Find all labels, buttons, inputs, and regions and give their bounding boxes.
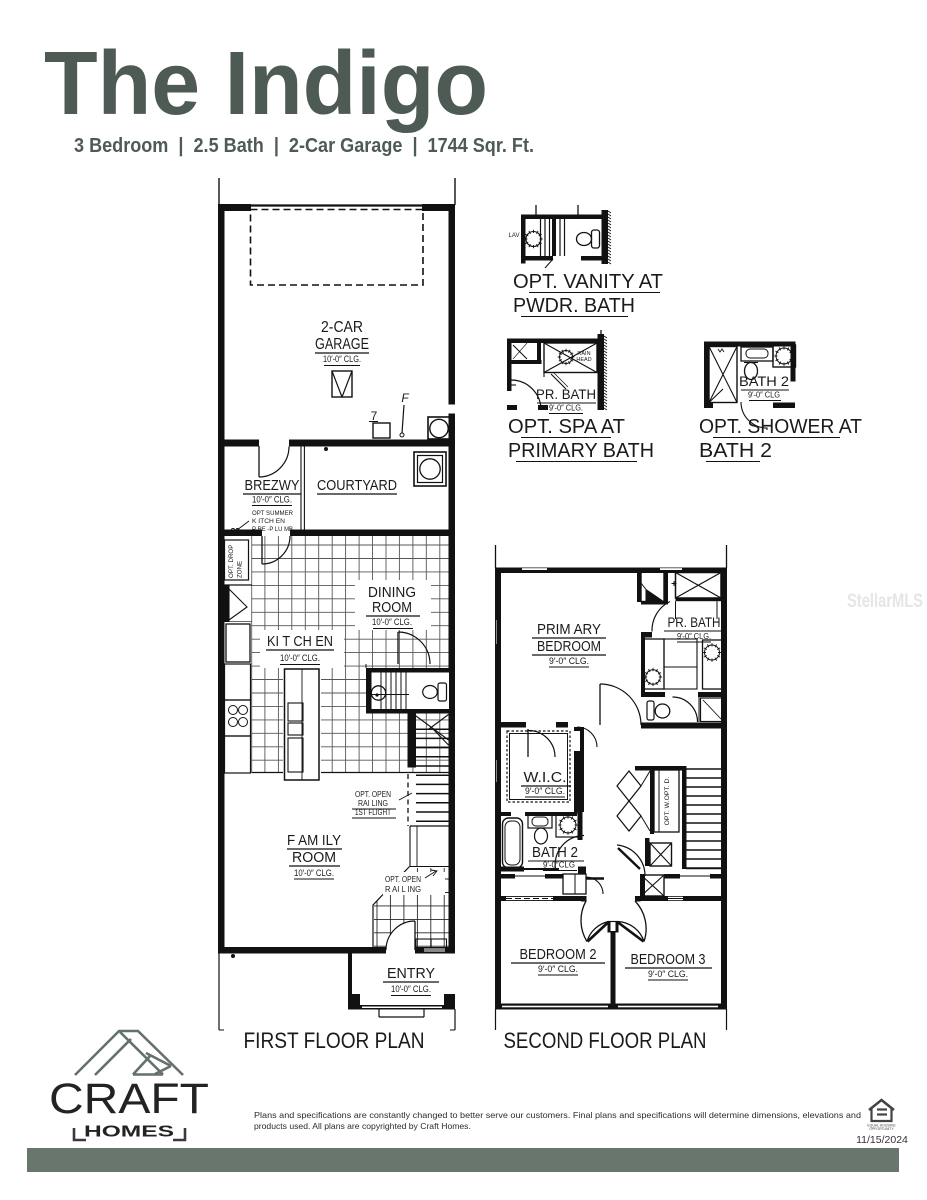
svg-text:COURTYARD: COURTYARD <box>317 477 397 494</box>
svg-text:2-CAR: 2-CAR <box>321 319 363 336</box>
svg-text:R AI L ING: R AI L ING <box>385 885 421 894</box>
svg-text:PR. BATH: PR. BATH <box>536 386 596 402</box>
svg-text:PR. BATH: PR. BATH <box>668 614 721 630</box>
svg-text:RAI LING: RAI LING <box>358 799 388 808</box>
svg-text:10′-0″ CLG.: 10′-0″ CLG. <box>280 653 320 663</box>
svg-text:W.I.C.: W.I.C. <box>524 769 567 786</box>
svg-text:K ITCH EN: K ITCH EN <box>252 518 285 525</box>
svg-text:9′-0″ CLG: 9′-0″ CLG <box>748 390 780 400</box>
svg-text:KI T CH EN: KI T CH EN <box>267 633 333 650</box>
svg-text:BATH 2: BATH 2 <box>699 440 772 462</box>
svg-text:10′-0″ CLG.: 10′-0″ CLG. <box>294 868 334 878</box>
svg-text:BEDROOM 2: BEDROOM 2 <box>520 946 597 963</box>
svg-text:GARAGE: GARAGE <box>315 336 369 353</box>
svg-text:9′-0″ CLG.: 9′-0″ CLG. <box>648 969 688 979</box>
svg-text:BATH 2: BATH 2 <box>739 373 789 389</box>
svg-text:OPT. SPA AT: OPT. SPA AT <box>508 416 625 438</box>
svg-text:1ST FLIGHT: 1ST FLIGHT <box>355 808 391 817</box>
svg-text:10′-0″ CLG.: 10′-0″ CLG. <box>372 617 412 627</box>
svg-text:11/15/2024: 11/15/2024 <box>856 1134 908 1146</box>
svg-text:FIRST FLOOR PLAN: FIRST FLOOR PLAN <box>244 1028 425 1053</box>
svg-text:OPPORTUNITY: OPPORTUNITY <box>869 1127 894 1131</box>
svg-text:ROOM: ROOM <box>372 599 412 616</box>
svg-text:PRIM ARY: PRIM ARY <box>537 621 601 638</box>
svg-text:10′-0″ CLG.: 10′-0″ CLG. <box>323 354 361 364</box>
svg-text:ROOM: ROOM <box>292 849 336 866</box>
svg-text:ENTRY: ENTRY <box>387 965 435 982</box>
svg-text:3 Bedroom | 2.5 Bath | 2-C: 3 Bedroom | 2.5 Bath | 2-Car Garage | 17… <box>74 135 534 157</box>
svg-text:BEDROOM 3: BEDROOM 3 <box>631 951 706 968</box>
svg-text:BATH 2: BATH 2 <box>532 844 578 861</box>
svg-text:OPT. SHOWER AT: OPT. SHOWER AT <box>699 416 862 438</box>
svg-text:CRAFT: CRAFT <box>49 1075 209 1123</box>
svg-text:OPT. W.OPT. D.: OPT. W.OPT. D. <box>664 777 671 826</box>
svg-text:Plans and specifications are c: Plans and specifications are constantly … <box>254 1110 861 1120</box>
svg-text:7: 7 <box>371 409 378 423</box>
svg-text:OPT. OPEN: OPT. OPEN <box>355 790 391 799</box>
svg-text:F AM ILY: F AM ILY <box>287 832 341 849</box>
svg-text:HEAD: HEAD <box>576 357 591 363</box>
svg-text:10′-0″ CLG.: 10′-0″ CLG. <box>391 984 431 994</box>
svg-text:10′-0″ CLG.: 10′-0″ CLG. <box>252 495 292 505</box>
svg-text:9′-0″ CLG.: 9′-0″ CLG. <box>538 964 578 974</box>
svg-text:HOMES: HOMES <box>84 1124 174 1141</box>
svg-text:LAV: LAV <box>509 233 520 239</box>
svg-text:OPT. OPEN: OPT. OPEN <box>385 875 421 884</box>
svg-text:OPT. VANITY AT: OPT. VANITY AT <box>513 271 663 293</box>
svg-text:The Indigo: The Indigo <box>44 34 488 134</box>
svg-text:F: F <box>401 391 409 405</box>
svg-text:StellarMLS: StellarMLS <box>847 590 923 612</box>
svg-text:OPT SUMMER: OPT SUMMER <box>252 510 293 517</box>
svg-text:PRIMARY BATH: PRIMARY BATH <box>508 440 654 462</box>
svg-text:ZONE: ZONE <box>237 561 244 578</box>
svg-text:products used. All plans are c: products used. All plans are copyrighted… <box>254 1121 471 1131</box>
svg-text:9′-0″ CLG.: 9′-0″ CLG. <box>549 403 583 413</box>
svg-text:9′-0″ CLG.: 9′-0″ CLG. <box>525 786 565 796</box>
svg-text:OPT. DROP: OPT. DROP <box>228 545 235 578</box>
svg-text:BEDROOM: BEDROOM <box>537 638 601 655</box>
svg-text:9′-0″ CLG.: 9′-0″ CLG. <box>549 656 589 666</box>
svg-text:BREZWY: BREZWY <box>245 477 300 494</box>
svg-text:PWDR. BATH: PWDR. BATH <box>513 295 635 317</box>
svg-text:SECOND FLOOR PLAN: SECOND FLOOR PLAN <box>504 1028 707 1053</box>
